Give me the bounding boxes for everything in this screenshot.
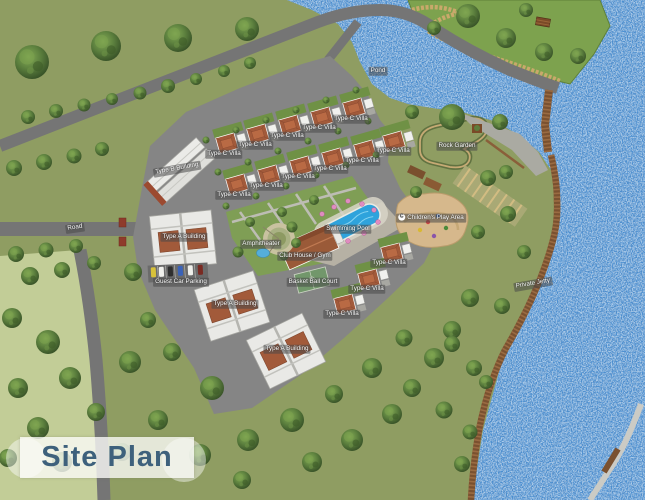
site-plan-map: Road Pond Rock Garden Private Jetty Type… (0, 0, 645, 500)
guest-car-parking (148, 262, 209, 282)
title-banner: Site Plan (20, 437, 194, 478)
site-plan-drawing (0, 0, 645, 500)
wooden-bridge (545, 90, 549, 152)
page-title: Site Plan (41, 441, 173, 474)
